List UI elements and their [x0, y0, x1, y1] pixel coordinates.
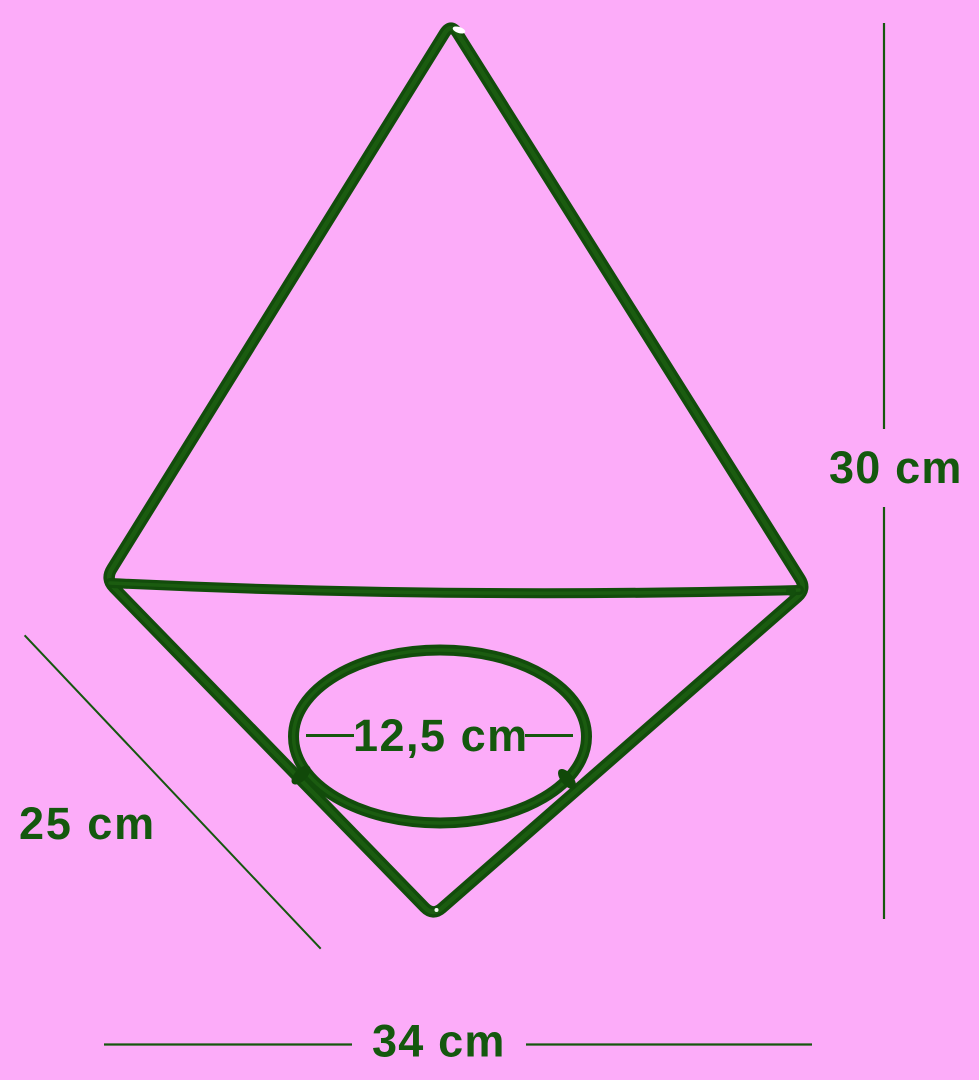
svg-text:34 cm: 34 cm	[372, 1016, 506, 1067]
svg-text:30 cm: 30 cm	[829, 442, 963, 493]
svg-text:25 cm: 25 cm	[19, 798, 156, 849]
svg-text:12,5 cm: 12,5 cm	[353, 710, 529, 761]
